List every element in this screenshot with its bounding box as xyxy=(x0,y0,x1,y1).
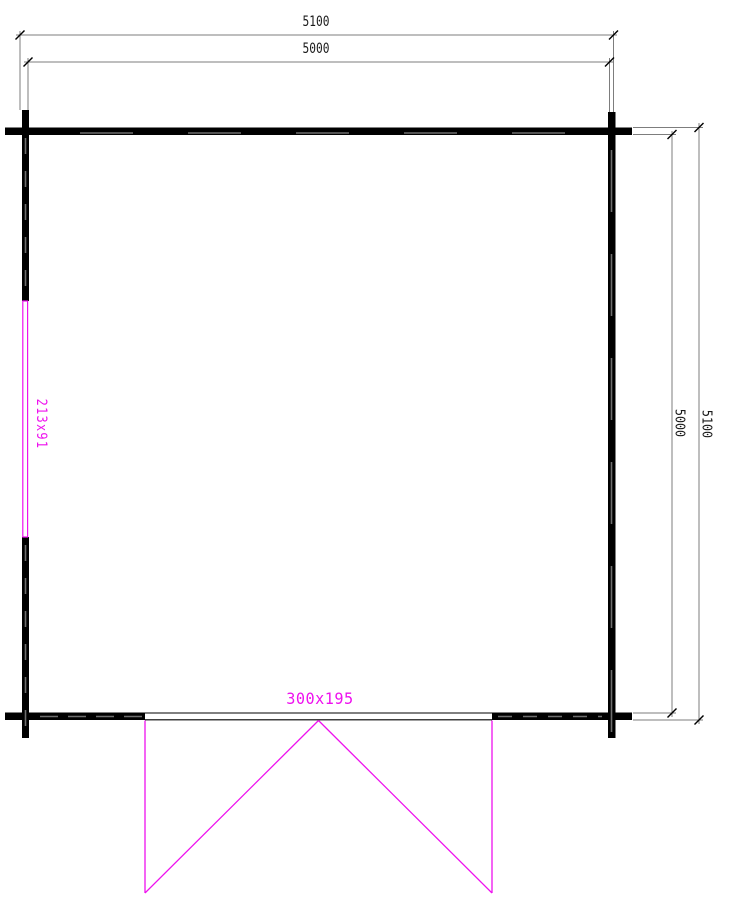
left-wall-lower xyxy=(22,537,29,738)
window-size-label: 213x91 xyxy=(34,399,48,450)
door-left-leaf-line xyxy=(145,721,319,894)
door-threshold xyxy=(145,713,492,720)
door-size-label: 300x195 xyxy=(286,691,353,707)
door-right-leaf-line xyxy=(319,721,493,894)
floor-plan-canvas: 5100 5000 5000 5100 213x91 300x195 xyxy=(0,0,734,902)
dim-label-top-inner: 5000 xyxy=(303,42,330,56)
dim-label-right-outer: 5100 xyxy=(700,410,713,438)
plan-drawing xyxy=(0,0,734,902)
log-joint-lines xyxy=(26,133,612,735)
window-symbol xyxy=(23,301,28,537)
door-swing xyxy=(145,721,492,894)
dim-label-right-inner: 5000 xyxy=(673,409,686,437)
walls xyxy=(5,110,632,738)
top-wall xyxy=(5,128,632,136)
dim-label-top-outer: 5100 xyxy=(303,15,330,29)
